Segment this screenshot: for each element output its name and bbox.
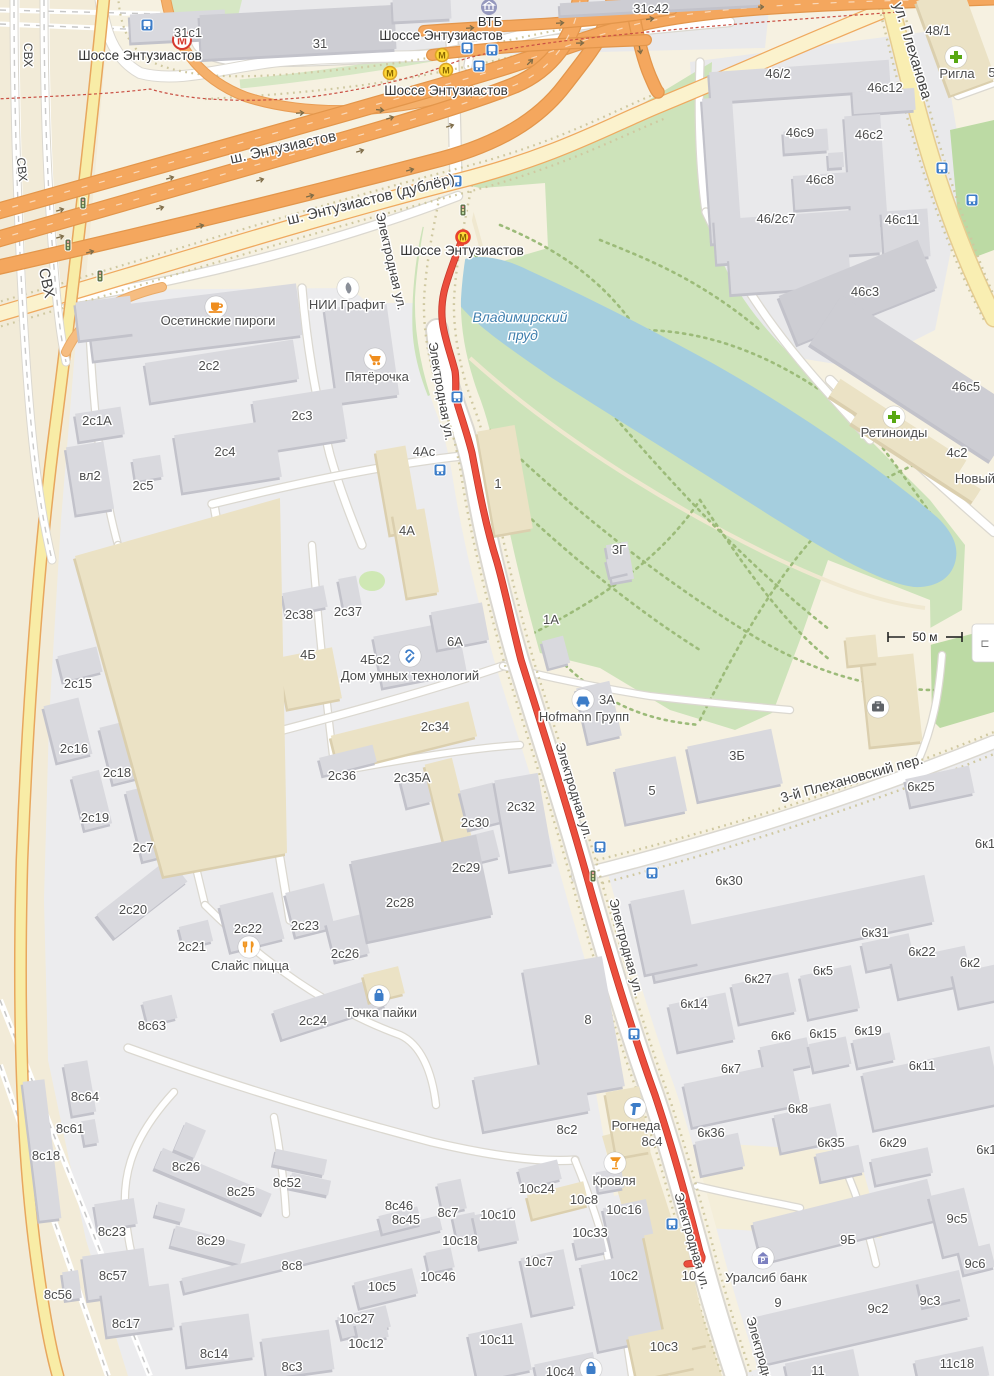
- svg-text:8: 8: [584, 1012, 591, 1027]
- svg-text:2с16: 2с16: [60, 741, 88, 756]
- svg-text:46/2: 46/2: [765, 66, 790, 81]
- svg-text:8с26: 8с26: [172, 1159, 200, 1174]
- svg-text:2с38: 2с38: [285, 607, 313, 622]
- svg-text:4Ас: 4Ас: [413, 444, 436, 459]
- svg-text:Р: Р: [761, 1258, 766, 1265]
- svg-text:6к7: 6к7: [721, 1061, 741, 1076]
- svg-text:11с18: 11с18: [940, 1356, 974, 1371]
- svg-text:50 м: 50 м: [913, 630, 938, 644]
- svg-text:М: М: [386, 69, 394, 79]
- svg-text:8с23: 8с23: [98, 1224, 126, 1239]
- svg-text:10с24: 10с24: [519, 1181, 554, 1196]
- svg-text:46/2с7: 46/2с7: [756, 211, 795, 226]
- svg-text:46с8: 46с8: [806, 172, 834, 187]
- svg-text:4Бс2: 4Бс2: [360, 652, 390, 667]
- svg-text:6к35: 6к35: [817, 1135, 844, 1150]
- svg-text:ВТБ: ВТБ: [478, 14, 502, 29]
- svg-text:М: М: [442, 66, 450, 76]
- svg-text:вл2: вл2: [79, 468, 100, 483]
- svg-text:2с3: 2с3: [292, 408, 313, 423]
- svg-text:10с4: 10с4: [546, 1364, 574, 1376]
- svg-text:6к16: 6к16: [976, 1142, 994, 1157]
- svg-text:2с34: 2с34: [421, 719, 449, 734]
- svg-text:8с29: 8с29: [197, 1233, 225, 1248]
- svg-text:2с23: 2с23: [291, 918, 319, 933]
- svg-text:6к31: 6к31: [861, 925, 888, 940]
- svg-text:4А: 4А: [399, 523, 415, 538]
- svg-text:3А: 3А: [599, 692, 615, 707]
- svg-text:46с11: 46с11: [885, 212, 919, 227]
- svg-text:Владимирский: Владимирский: [473, 309, 568, 325]
- svg-text:2с32: 2с32: [507, 799, 535, 814]
- svg-text:8с7: 8с7: [438, 1205, 459, 1220]
- svg-text:11: 11: [811, 1363, 825, 1376]
- svg-text:2с29: 2с29: [452, 860, 480, 875]
- svg-text:2с15: 2с15: [64, 676, 92, 691]
- svg-text:6к1: 6к1: [975, 836, 994, 851]
- svg-text:6к25: 6к25: [907, 779, 934, 794]
- svg-text:8с18: 8с18: [32, 1148, 60, 1163]
- svg-text:5: 5: [648, 783, 655, 798]
- svg-text:46с3: 46с3: [851, 284, 879, 299]
- svg-text:10с18: 10с18: [442, 1233, 477, 1248]
- svg-text:СВХ: СВХ: [21, 43, 35, 67]
- svg-text:2с28: 2с28: [386, 895, 414, 910]
- svg-text:9с6: 9с6: [965, 1256, 986, 1271]
- svg-text:6к36: 6к36: [697, 1125, 724, 1140]
- svg-text:10с3: 10с3: [650, 1339, 678, 1354]
- svg-text:6к6: 6к6: [771, 1028, 791, 1043]
- svg-text:2с30: 2с30: [461, 815, 489, 830]
- svg-text:10с11: 10с11: [480, 1332, 514, 1347]
- svg-text:2с4: 2с4: [215, 444, 236, 459]
- svg-text:46с9: 46с9: [786, 125, 814, 140]
- svg-text:8с4: 8с4: [642, 1134, 663, 1149]
- svg-text:Точка пайки: Точка пайки: [345, 1005, 417, 1020]
- svg-text:М: М: [459, 233, 467, 243]
- svg-text:10с12: 10с12: [348, 1336, 383, 1351]
- svg-text:1: 1: [494, 476, 501, 491]
- svg-text:6к19: 6к19: [854, 1023, 881, 1038]
- svg-text:6к22: 6к22: [908, 944, 935, 959]
- svg-text:Шоссе Энтузиастов: Шоссе Энтузиастов: [400, 243, 524, 258]
- svg-text:6к14: 6к14: [680, 996, 707, 1011]
- svg-text:9с2: 9с2: [868, 1301, 889, 1316]
- svg-text:10с2: 10с2: [610, 1268, 638, 1283]
- svg-text:8с25: 8с25: [227, 1184, 255, 1199]
- svg-text:6к30: 6к30: [715, 873, 742, 888]
- svg-text:10с5: 10с5: [368, 1279, 396, 1294]
- svg-text:2с35А: 2с35А: [394, 770, 431, 785]
- svg-text:Осетинские пироги: Осетинские пироги: [161, 313, 276, 328]
- svg-text:31: 31: [313, 36, 327, 51]
- svg-text:Ретиноиды: Ретиноиды: [861, 425, 928, 440]
- svg-text:НИИ Графит: НИИ Графит: [309, 297, 385, 312]
- svg-text:2с22: 2с22: [234, 921, 262, 936]
- svg-text:Кровля: Кровля: [592, 1173, 635, 1188]
- svg-text:6к11: 6к11: [909, 1058, 935, 1073]
- svg-text:10с8: 10с8: [570, 1192, 598, 1207]
- svg-text:9Б: 9Б: [840, 1232, 856, 1247]
- svg-text:46с12: 46с12: [867, 80, 902, 95]
- svg-text:Ригла: Ригла: [939, 66, 975, 81]
- svg-text:2с37: 2с37: [334, 604, 362, 619]
- svg-text:8с2: 8с2: [557, 1122, 578, 1137]
- svg-text:2с26: 2с26: [331, 946, 359, 961]
- svg-text:Пятёрочка: Пятёрочка: [345, 369, 409, 384]
- svg-text:8с3: 8с3: [282, 1359, 303, 1374]
- svg-text:Новый: Новый: [955, 471, 994, 486]
- svg-text:8с14: 8с14: [200, 1346, 228, 1361]
- svg-text:2с5: 2с5: [133, 478, 154, 493]
- svg-text:6к5: 6к5: [813, 963, 833, 978]
- svg-text:6к15: 6к15: [809, 1026, 836, 1041]
- svg-text:6к2: 6к2: [960, 955, 980, 970]
- svg-text:Шоссе Энтузиастов: Шоссе Энтузиастов: [78, 48, 202, 63]
- svg-text:9: 9: [774, 1295, 781, 1310]
- svg-text:10с7: 10с7: [525, 1254, 553, 1269]
- svg-text:10: 10: [682, 1268, 696, 1283]
- svg-text:8с63: 8с63: [138, 1018, 166, 1033]
- svg-text:46с5: 46с5: [952, 379, 980, 394]
- svg-text:Рогнеда: Рогнеда: [611, 1118, 661, 1133]
- svg-text:пруд: пруд: [508, 327, 538, 343]
- svg-text:10с10: 10с10: [480, 1207, 515, 1222]
- svg-text:2с21: 2с21: [178, 939, 206, 954]
- svg-text:8с17: 8с17: [112, 1316, 140, 1331]
- svg-text:48/1: 48/1: [925, 23, 950, 38]
- svg-text:М: М: [438, 51, 446, 61]
- svg-text:2с18: 2с18: [103, 765, 131, 780]
- svg-text:2с24: 2с24: [299, 1013, 327, 1028]
- svg-text:10с16: 10с16: [606, 1202, 641, 1217]
- svg-text:4Б: 4Б: [300, 647, 316, 662]
- svg-text:Hofmann Групп: Hofmann Групп: [539, 709, 629, 724]
- svg-text:СВХ: СВХ: [14, 157, 30, 182]
- svg-text:3Г: 3Г: [612, 542, 626, 557]
- svg-text:2с19: 2с19: [81, 810, 109, 825]
- svg-text:31с42: 31с42: [633, 1, 668, 16]
- svg-text:8с61: 8с61: [56, 1121, 84, 1136]
- svg-text:8с56: 8с56: [44, 1287, 72, 1302]
- svg-text:9с3: 9с3: [920, 1293, 941, 1308]
- svg-text:8с64: 8с64: [71, 1089, 99, 1104]
- svg-text:31с1: 31с1: [174, 25, 202, 40]
- svg-text:8с57: 8с57: [99, 1268, 127, 1283]
- svg-text:8с45: 8с45: [392, 1212, 420, 1227]
- svg-text:8с46: 8с46: [385, 1198, 413, 1213]
- svg-text:6к8: 6к8: [788, 1101, 808, 1116]
- svg-text:Дом умных технологий: Дом умных технологий: [341, 668, 479, 683]
- svg-text:5: 5: [988, 65, 994, 80]
- svg-text:2с1А: 2с1А: [82, 413, 112, 428]
- svg-text:10с46: 10с46: [420, 1269, 455, 1284]
- svg-text:Уралсиб банк: Уралсиб банк: [725, 1270, 807, 1285]
- svg-text:1А: 1А: [543, 612, 559, 627]
- svg-text:4с2: 4с2: [947, 445, 968, 460]
- svg-text:2с7: 2с7: [133, 840, 154, 855]
- svg-text:46с2: 46с2: [855, 127, 883, 142]
- svg-text:Шоссе Энтузиастов: Шоссе Энтузиастов: [384, 83, 508, 98]
- svg-text:10с33: 10с33: [572, 1225, 607, 1240]
- svg-text:8с52: 8с52: [273, 1175, 301, 1190]
- svg-text:2с36: 2с36: [328, 768, 356, 783]
- svg-text:Слайс пицца: Слайс пицца: [211, 958, 290, 973]
- svg-text:6к29: 6к29: [879, 1135, 906, 1150]
- svg-text:8с8: 8с8: [282, 1258, 303, 1273]
- svg-text:9с5: 9с5: [947, 1211, 968, 1226]
- svg-text:10с27: 10с27: [339, 1311, 374, 1326]
- svg-text:6А: 6А: [447, 634, 463, 649]
- svg-text:6к27: 6к27: [744, 971, 771, 986]
- svg-text:3Б: 3Б: [729, 748, 745, 763]
- svg-text:2с20: 2с20: [119, 902, 147, 917]
- svg-text:2с2: 2с2: [199, 358, 220, 373]
- svg-text:Шоссе Энтузиастов: Шоссе Энтузиастов: [379, 28, 503, 43]
- svg-text:⊏: ⊏: [980, 638, 989, 650]
